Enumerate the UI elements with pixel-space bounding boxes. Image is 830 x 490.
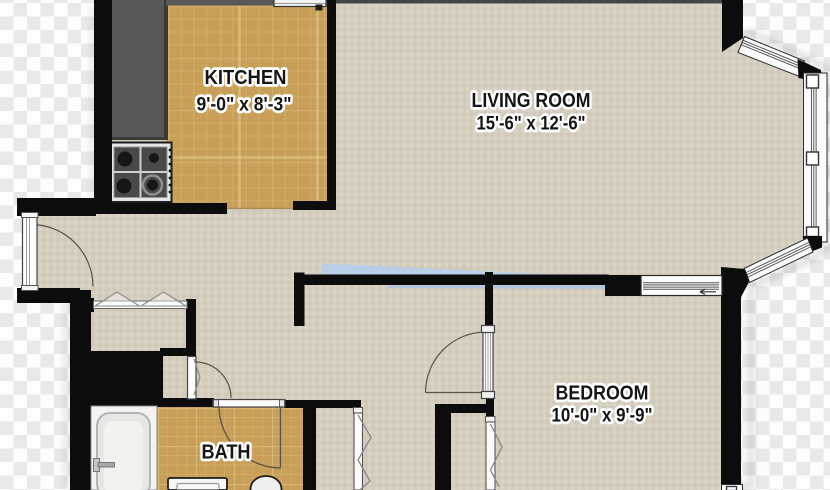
svg-text:BEDROOM: BEDROOM [556,382,649,405]
svg-text:9'-0" x 8'-3": 9'-0" x 8'-3" [197,94,292,116]
svg-text:KITCHEN: KITCHEN [205,66,287,89]
svg-text:15'-6" x 12'-6": 15'-6" x 12'-6" [477,113,586,135]
svg-text:BATH: BATH [202,441,251,464]
svg-text:LIVING ROOM: LIVING ROOM [472,89,591,112]
svg-text:10'-0" x 9'-9": 10'-0" x 9'-9" [552,405,653,427]
